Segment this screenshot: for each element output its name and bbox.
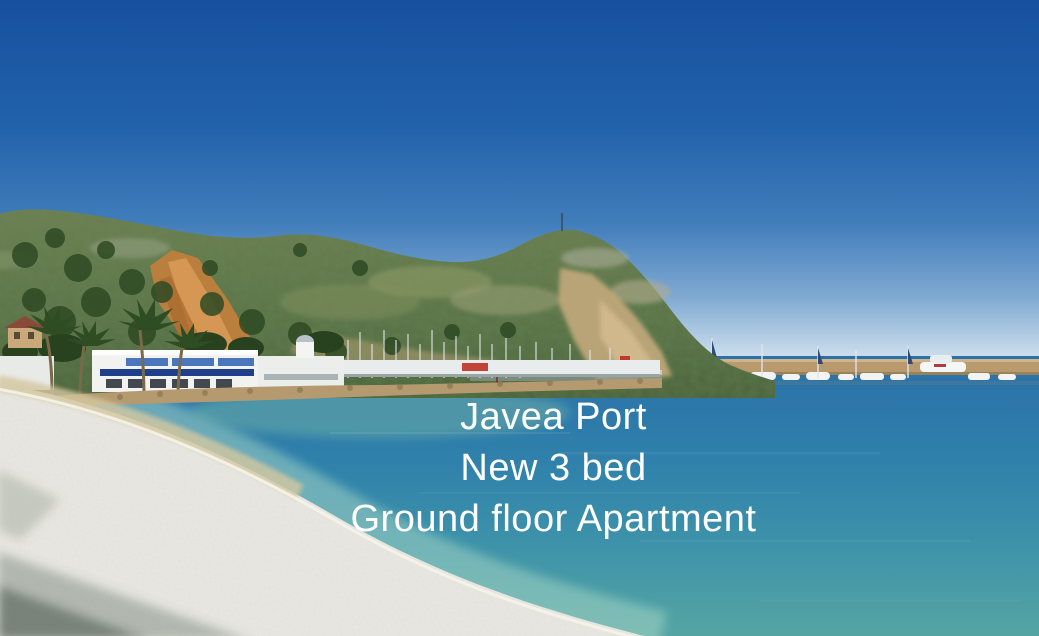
low-white-building [340, 360, 660, 376]
photo-javea-port: Javea Port New 3 bed Ground floor Apartm… [0, 0, 1039, 636]
red-kiosk [462, 363, 488, 371]
blue-awning [126, 358, 168, 366]
blue-fascia [100, 369, 254, 376]
blue-awning [172, 358, 214, 366]
blue-awning [218, 358, 254, 366]
scene-canvas [0, 0, 1039, 636]
restaurant-building [92, 350, 258, 392]
